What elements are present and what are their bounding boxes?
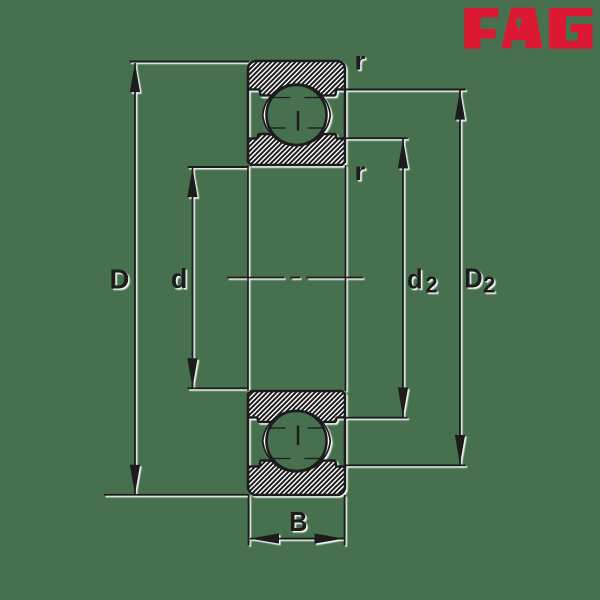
svg-text:2: 2 <box>483 271 495 298</box>
svg-text:r: r <box>355 157 366 185</box>
svg-text:r: r <box>355 47 366 75</box>
svg-text:2: 2 <box>426 272 438 298</box>
svg-text:D: D <box>464 263 482 294</box>
svg-text:B: B <box>289 506 307 538</box>
svg-text:D: D <box>110 263 130 294</box>
svg-text:d: d <box>407 263 423 294</box>
svg-text:d: d <box>171 262 188 293</box>
